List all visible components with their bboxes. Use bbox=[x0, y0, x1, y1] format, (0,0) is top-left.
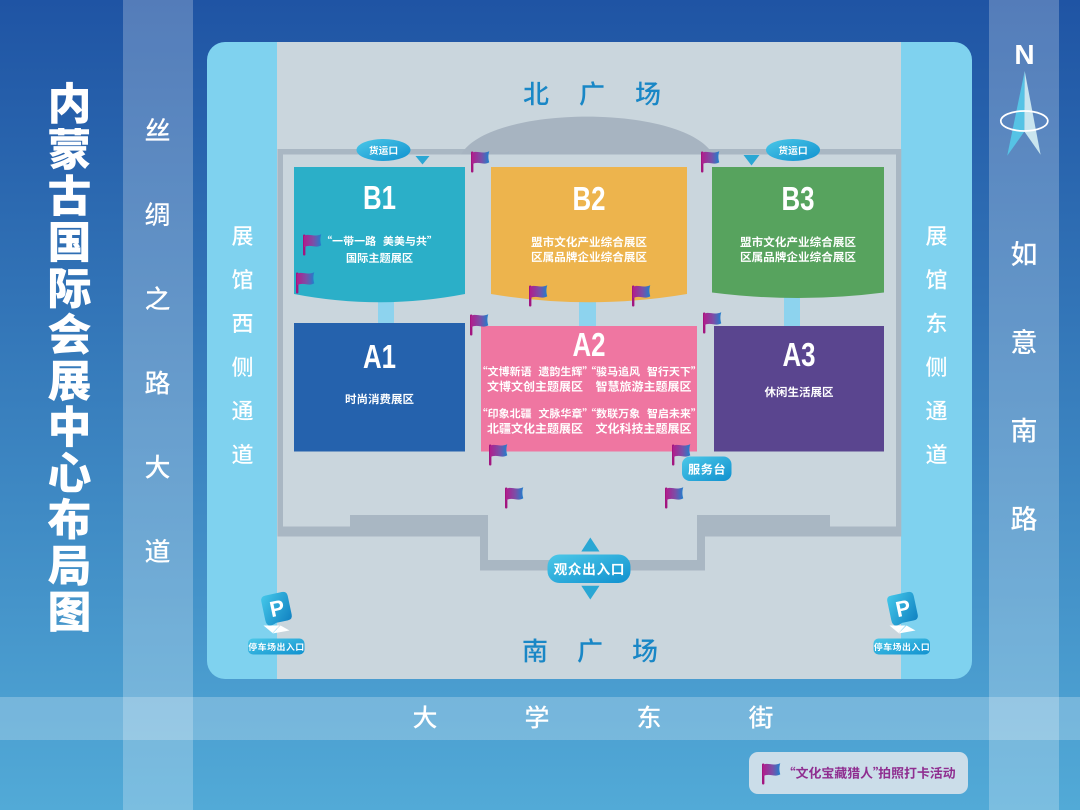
svg-text:B3: B3 bbox=[782, 180, 815, 217]
svg-text:B1: B1 bbox=[363, 179, 396, 216]
svg-text:A2: A2 bbox=[573, 326, 606, 363]
svg-text:A3: A3 bbox=[783, 336, 816, 373]
svg-text:A1: A1 bbox=[363, 338, 396, 375]
svg-text:N: N bbox=[1014, 39, 1034, 70]
svg-text:B2: B2 bbox=[573, 180, 606, 217]
